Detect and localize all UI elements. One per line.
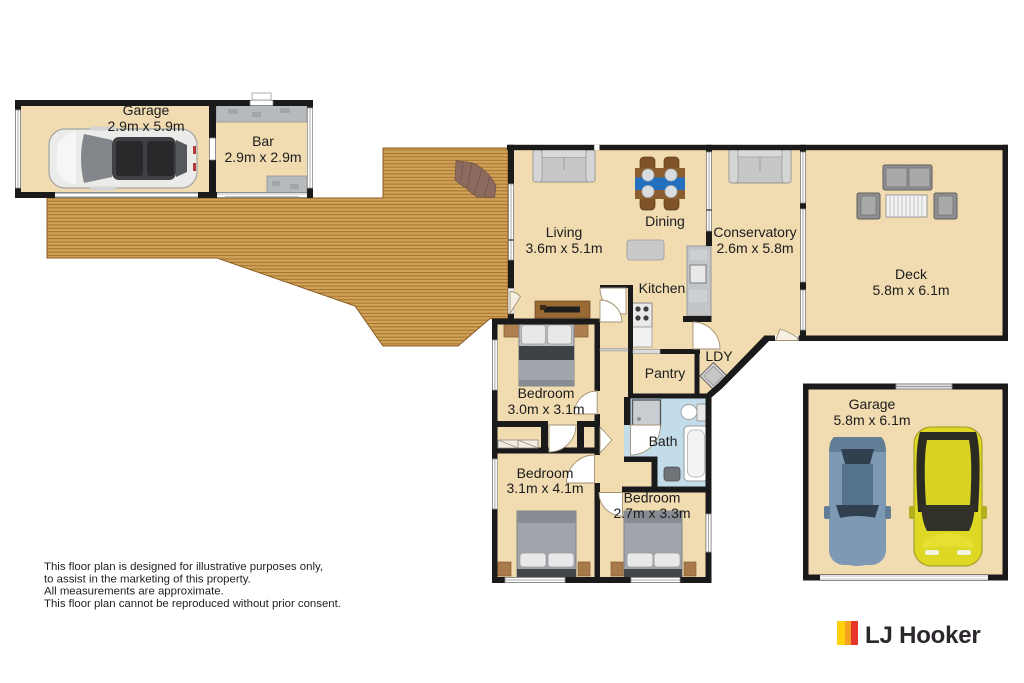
svg-text:Bedroom: Bedroom [517,465,574,481]
svg-text:LDY: LDY [705,348,733,364]
svg-text:Bedroom: Bedroom [624,490,681,506]
svg-text:LJ Hooker: LJ Hooker [865,622,981,649]
svg-text:Conservatory: Conservatory [713,224,796,240]
svg-text:This floor plan is designed fo: This floor plan is designed for illustra… [44,561,323,573]
svg-text:Pantry: Pantry [645,365,685,381]
svg-text:3.6m x 5.1m: 3.6m x 5.1m [525,240,602,256]
svg-text:2.7m x 3.3m: 2.7m x 3.3m [613,505,690,521]
svg-text:2.9m x 5.9m: 2.9m x 5.9m [107,118,184,134]
svg-text:Bath: Bath [649,433,678,449]
svg-text:3.1m x 4.1m: 3.1m x 4.1m [506,480,583,496]
svg-text:5.8m x 6.1m: 5.8m x 6.1m [872,282,949,298]
svg-text:to assist in the marketing of: to assist in the marketing of this prope… [44,573,251,585]
svg-text:Garage: Garage [849,396,896,412]
svg-text:Bedroom: Bedroom [518,385,575,401]
svg-text:3.0m x 3.1m: 3.0m x 3.1m [507,401,584,417]
svg-text:Dining: Dining [645,213,685,229]
svg-text:Garage: Garage [123,102,170,118]
svg-text:2.9m x 2.9m: 2.9m x 2.9m [224,149,301,165]
svg-text:Kitchen: Kitchen [639,280,686,296]
svg-text:All measurements are approxima: All measurements are approximate. [44,586,224,598]
svg-text:Living: Living [546,224,583,240]
svg-text:Deck: Deck [895,266,928,282]
svg-text:2.6m x 5.8m: 2.6m x 5.8m [716,240,793,256]
svg-text:This floor plan cannot be repr: This floor plan cannot be reproduced wit… [44,598,341,610]
svg-text:Bar: Bar [252,133,274,149]
svg-text:5.8m x 6.1m: 5.8m x 6.1m [833,412,910,428]
